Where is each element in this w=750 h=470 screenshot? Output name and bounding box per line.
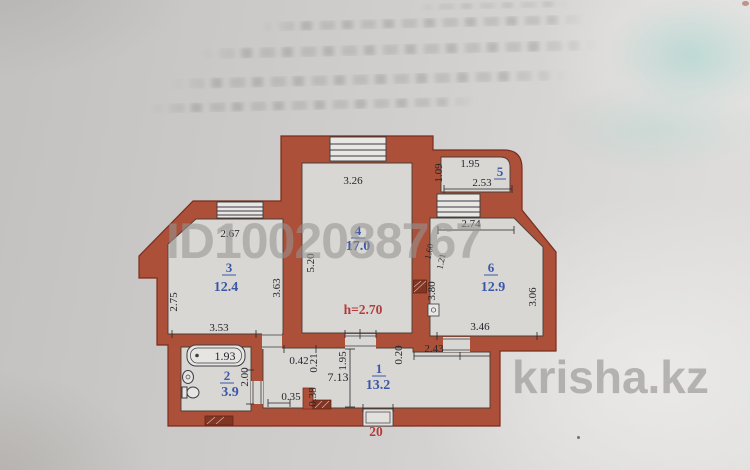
photo-speck bbox=[577, 436, 580, 439]
room6-area: 12.9 bbox=[481, 280, 506, 295]
krisha-watermark: krisha.kz bbox=[512, 350, 709, 404]
door-room4 bbox=[345, 334, 376, 349]
dim-hall-seg-a: 0.42 bbox=[289, 355, 308, 367]
door-room3 bbox=[262, 333, 282, 349]
dim-room5-width: 2.53 bbox=[472, 177, 492, 189]
dim-room3-left: 2.75 bbox=[168, 292, 180, 312]
room1-number: 1 bbox=[376, 361, 383, 376]
dim-hall-length: 7.13 bbox=[328, 370, 349, 384]
ceiling-height-note: h=2.70 bbox=[344, 302, 383, 317]
sink-icon bbox=[183, 371, 194, 384]
dim-room3-bottom: 3.53 bbox=[209, 322, 229, 334]
boiler-icon bbox=[428, 304, 439, 316]
room6-number: 6 bbox=[488, 260, 495, 275]
vent-shaft-icon bbox=[205, 416, 233, 425]
dim-bath-depth: 2.00 bbox=[239, 367, 251, 387]
dim-hall-width: 1.95 bbox=[337, 351, 349, 371]
door-room6 bbox=[443, 337, 470, 352]
dim-hall-wall-b: 0.20 bbox=[393, 345, 405, 365]
dim-room6-left: 3.80 bbox=[426, 281, 438, 301]
dim-room6-bottom: 3.46 bbox=[470, 321, 490, 333]
dim-room4-top: 3.26 bbox=[343, 175, 363, 187]
dim-room5-left: 1.09 bbox=[433, 163, 445, 183]
dim-bathtub-length: 1.93 bbox=[215, 349, 236, 363]
vent-shaft-icon bbox=[414, 280, 427, 293]
room3-area: 12.4 bbox=[214, 280, 239, 295]
toilet-icon bbox=[182, 387, 199, 398]
screenshot-root: 2.67 2.75 3.63 3.53 3.26 5.20 1.09 1.95 … bbox=[0, 0, 750, 470]
apartment-number: 20 bbox=[369, 424, 383, 439]
door-bathroom bbox=[251, 381, 263, 404]
dim-room6-right: 3.06 bbox=[527, 287, 539, 307]
photo-speck bbox=[742, 1, 749, 6]
dim-room3-right: 3.63 bbox=[271, 278, 283, 298]
room5-number: 5 bbox=[497, 164, 504, 179]
room2-area: 3.9 bbox=[221, 385, 239, 400]
dim-room5-top: 1.95 bbox=[460, 158, 480, 170]
dim-hall-wall-a: 0.21 bbox=[308, 353, 320, 372]
dim-hall-seg-b: 2.43 bbox=[424, 343, 444, 355]
window-room4-icon bbox=[330, 137, 386, 161]
listing-id-watermark: ID1002088767 bbox=[166, 212, 482, 270]
dim-hall-wall-c: 0.38 bbox=[307, 387, 319, 407]
dim-hall-seg-c: 0.35 bbox=[281, 391, 301, 403]
room2-number: 2 bbox=[224, 368, 231, 383]
room1-area: 13.2 bbox=[366, 378, 391, 393]
